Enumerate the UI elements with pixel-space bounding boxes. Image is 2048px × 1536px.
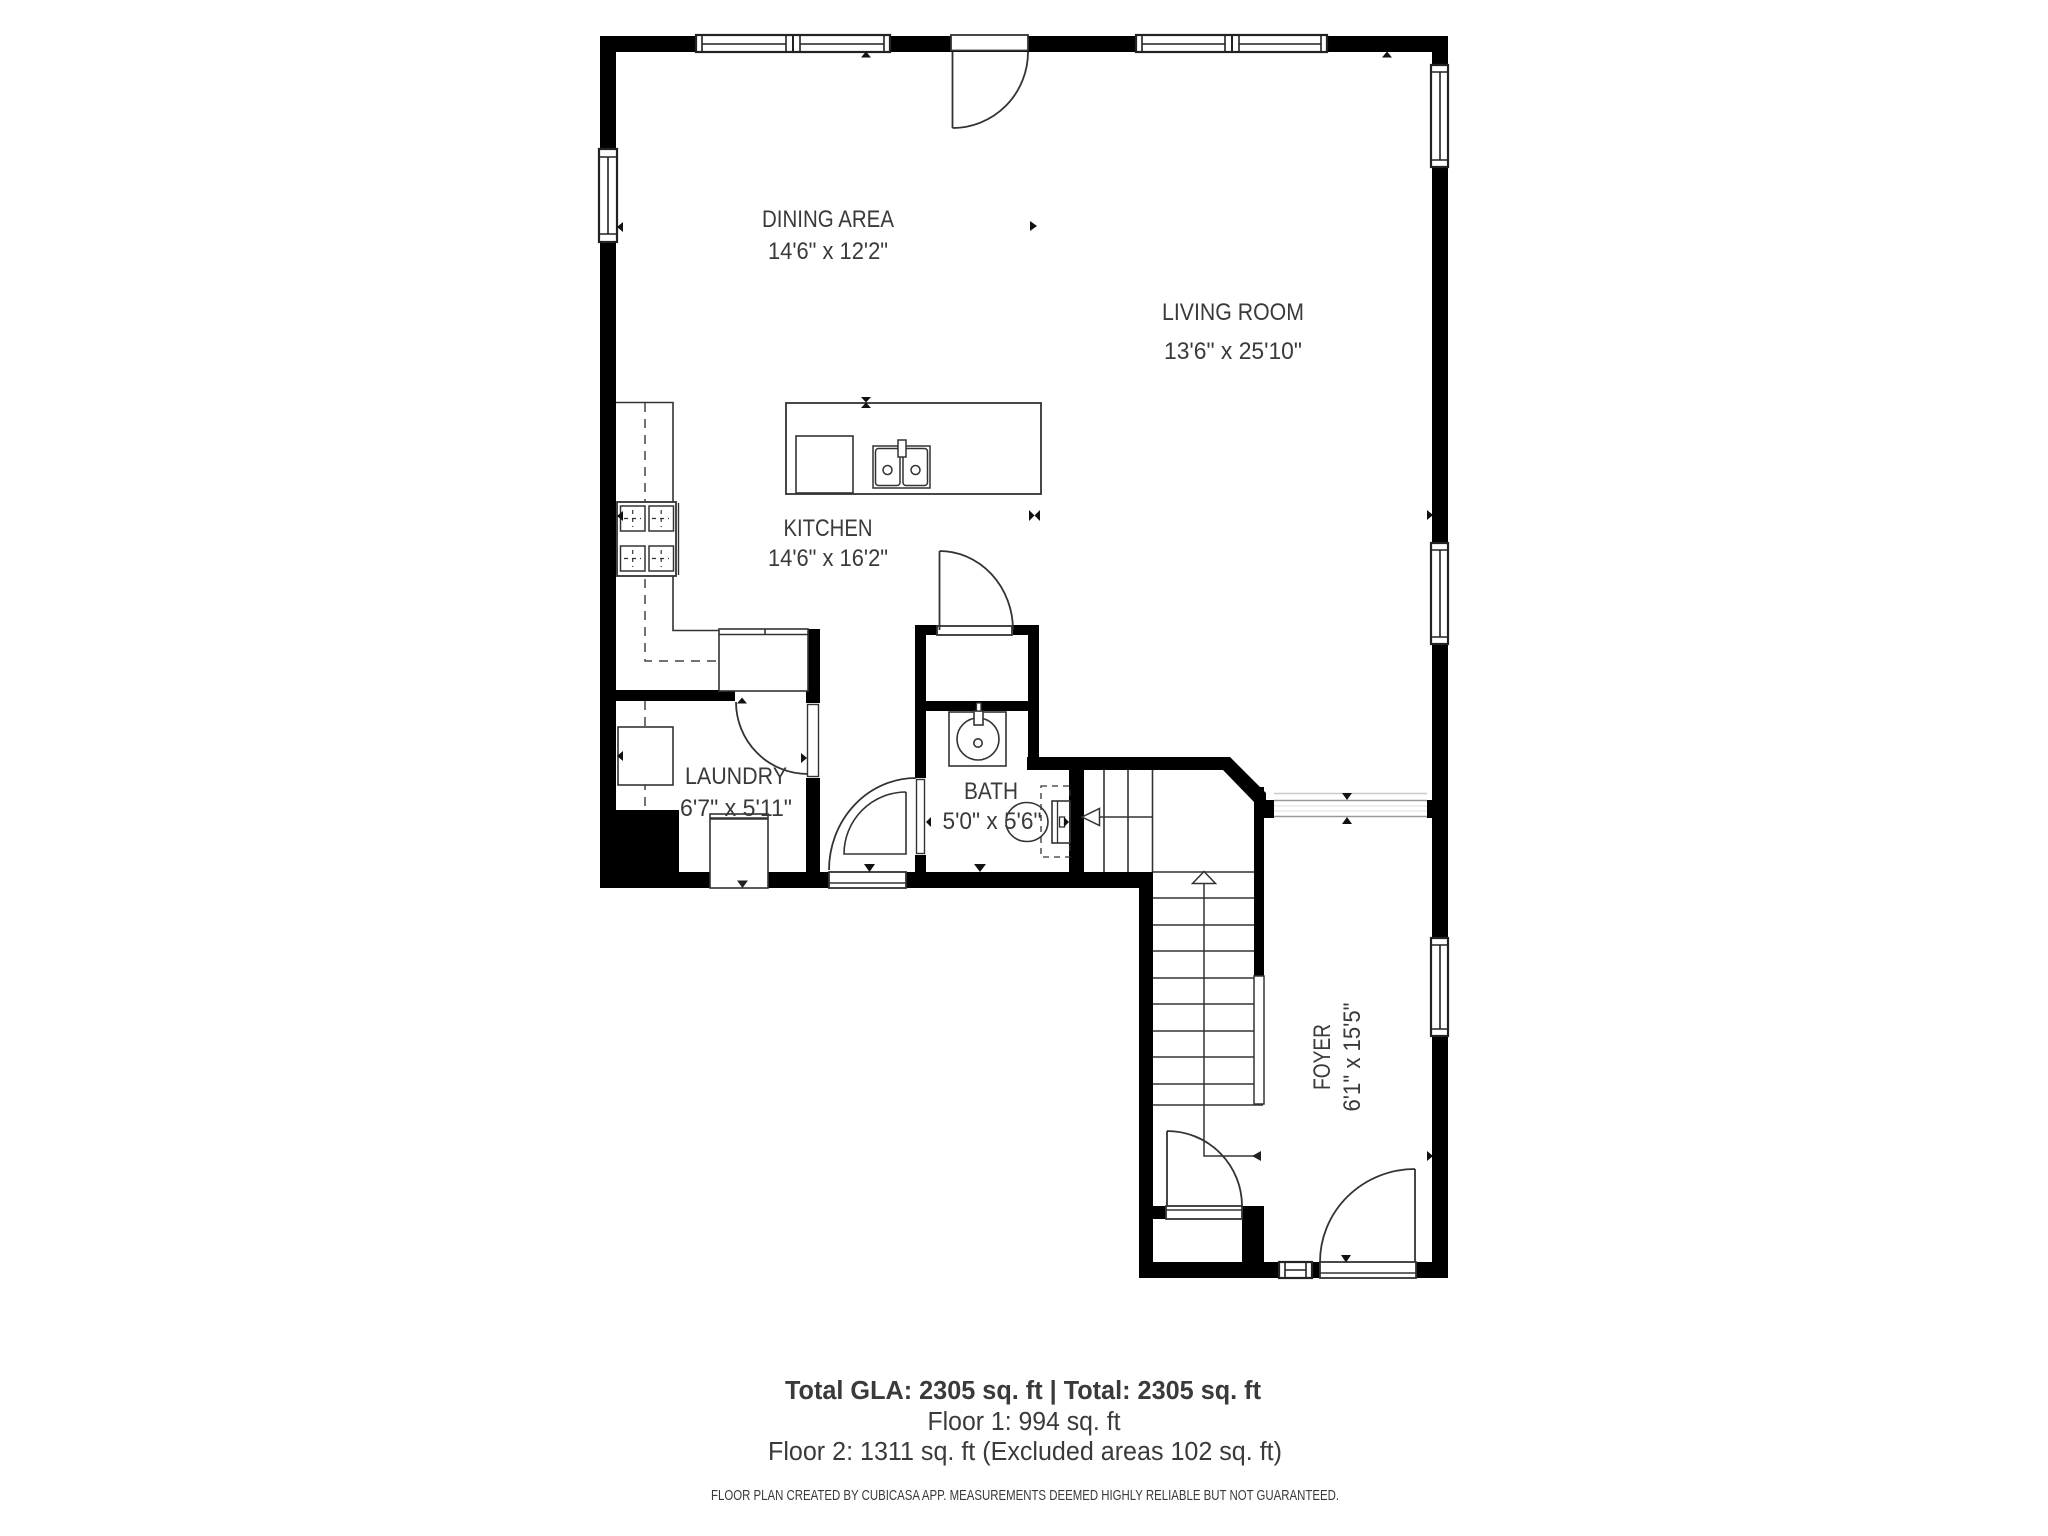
svg-text:6'7" x 5'11": 6'7" x 5'11"	[680, 795, 792, 822]
svg-text:13'6" x 25'10": 13'6" x 25'10"	[1164, 338, 1302, 365]
svg-text:LIVING ROOM: LIVING ROOM	[1162, 299, 1304, 326]
svg-text:FLOOR PLAN CREATED BY CUBICASA: FLOOR PLAN CREATED BY CUBICASA APP. MEAS…	[711, 1487, 1339, 1504]
svg-text:BATH: BATH	[964, 778, 1018, 805]
svg-text:Floor 1: 994 sq. ft: Floor 1: 994 sq. ft	[928, 1408, 1121, 1436]
svg-text:DINING AREA: DINING AREA	[762, 206, 894, 233]
svg-text:6'1" x 15'5": 6'1" x 15'5"	[1339, 1003, 1366, 1112]
svg-text:Total GLA: 2305 sq. ft | Total: Total GLA: 2305 sq. ft | Total: 2305 sq.…	[785, 1377, 1261, 1405]
svg-text:LAUNDRY: LAUNDRY	[685, 763, 787, 790]
svg-text:5'0" x 5'6": 5'0" x 5'6"	[943, 808, 1042, 835]
svg-text:FOYER: FOYER	[1309, 1024, 1336, 1090]
svg-text:14'6" x 16'2": 14'6" x 16'2"	[768, 545, 888, 572]
svg-text:KITCHEN: KITCHEN	[784, 515, 873, 542]
svg-text:Floor 2: 1311 sq. ft (Excluded: Floor 2: 1311 sq. ft (Excluded areas 102…	[768, 1438, 1282, 1466]
svg-text:14'6" x 12'2": 14'6" x 12'2"	[768, 238, 888, 265]
